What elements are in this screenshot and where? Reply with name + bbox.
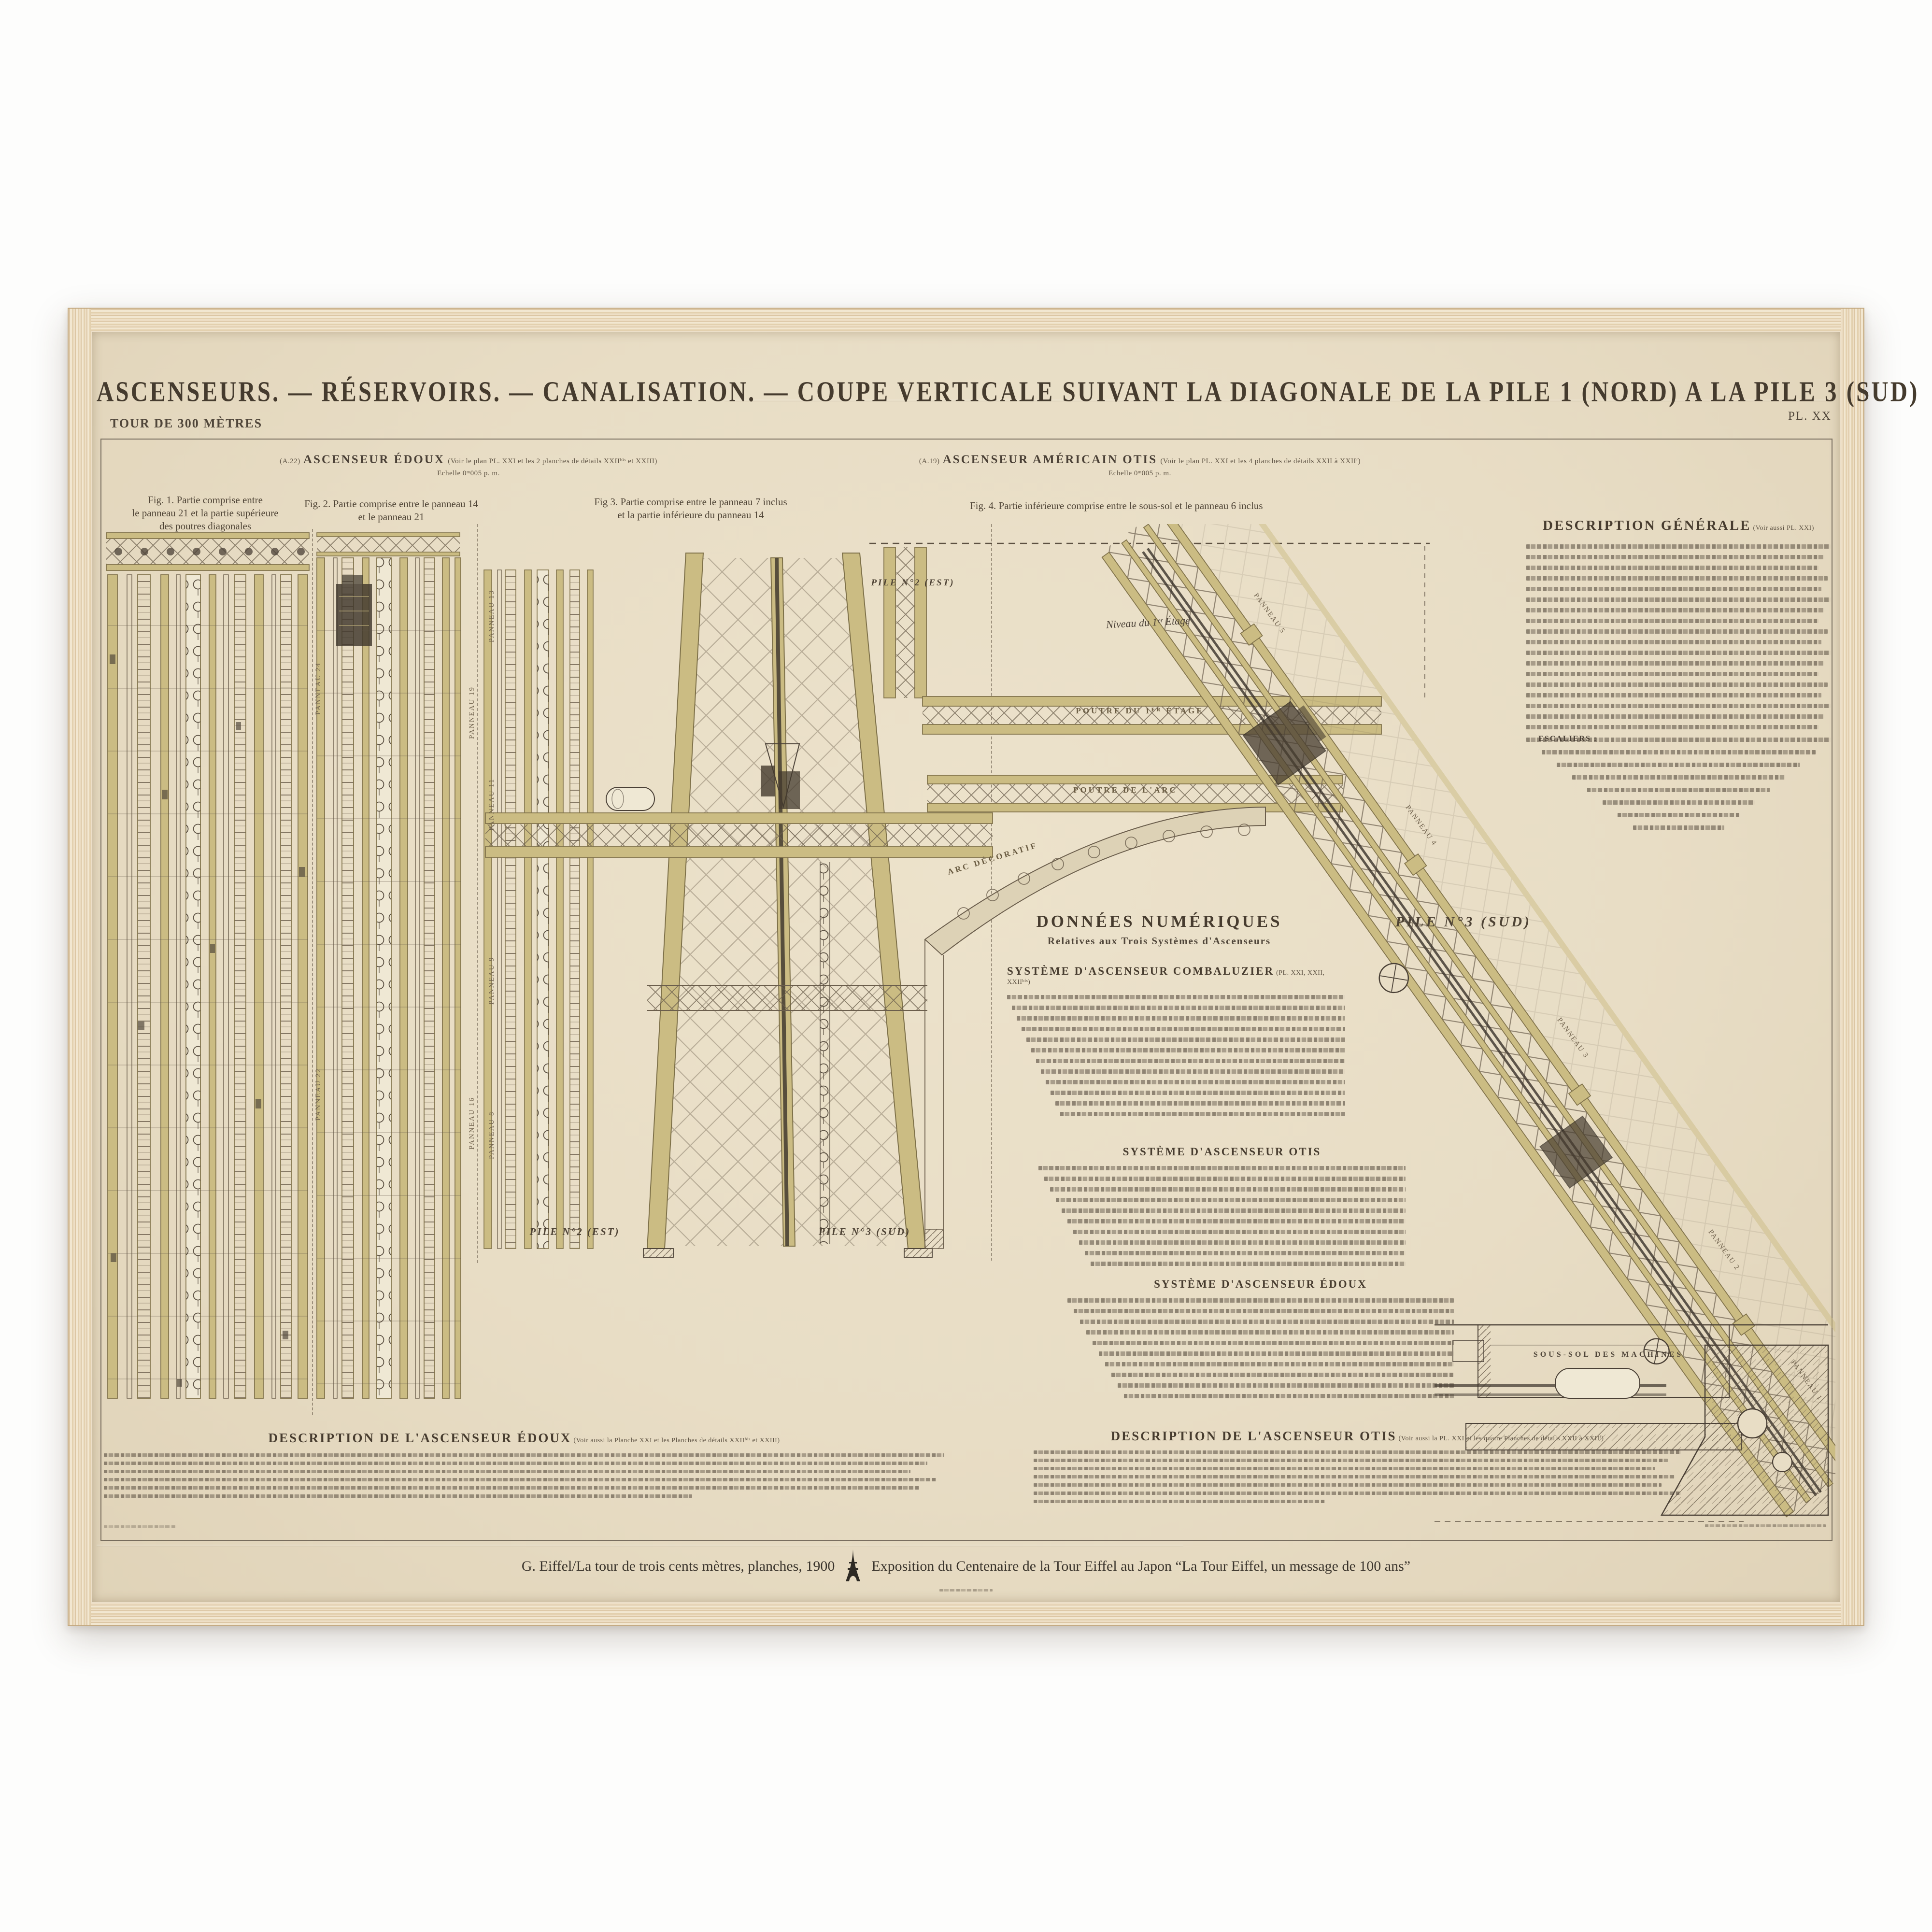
microtext-line xyxy=(1526,693,1821,697)
microtext-line xyxy=(1056,1198,1406,1202)
fig1-top-girder xyxy=(106,533,309,570)
edoux-scale: Echelle 0ᵐ005 p. m. xyxy=(203,469,734,478)
machine-basement-label: SOUS-SOL DES MACHINES xyxy=(1507,1350,1710,1359)
microtext-line xyxy=(1050,1187,1406,1192)
microtext-line xyxy=(1022,1027,1345,1031)
otis-name: ASCENSEUR AMÉRICAIN OTIS xyxy=(943,453,1157,466)
paper-crease xyxy=(97,1545,1183,1547)
frame-bar-bottom xyxy=(68,1603,1864,1626)
microtext-line xyxy=(1067,1298,1454,1303)
fig2-caption: Fig. 2. Partie comprise entre le panneau… xyxy=(290,497,493,524)
microtext-line xyxy=(1526,661,1824,666)
plate-title-text: ASCENSEURS. — RÉSERVOIRS. — CANALISATION… xyxy=(97,375,1919,408)
microtext-line xyxy=(1557,763,1800,767)
microtext-line xyxy=(1111,1373,1454,1377)
description-edoux-title: DESCRIPTION DE L'ASCENSEUR ÉDOUX xyxy=(268,1431,571,1445)
microtext-line xyxy=(104,1453,944,1457)
frame-bar-left xyxy=(68,308,91,1626)
description-otis-title: DESCRIPTION DE L'ASCENSEUR OTIS xyxy=(1111,1429,1397,1443)
logo-subtext xyxy=(939,1589,993,1591)
microtext-line xyxy=(1526,544,1831,549)
description-generale-block: DESCRIPTION GÉNÉRALE (Voir aussi PL. XXI… xyxy=(1526,518,1831,838)
exhibition-caption: G. Eiffel/La tour de trois cents mètres,… xyxy=(97,1548,1835,1584)
pile3-main-label: PILE N°3 (SUD) xyxy=(1372,914,1555,930)
microtext-line xyxy=(1034,1450,1681,1454)
microtext-line xyxy=(1603,800,1755,805)
microtext-line xyxy=(1526,576,1828,581)
description-edoux-text xyxy=(104,1453,944,1498)
description-generale-title: DESCRIPTION GÉNÉRALE xyxy=(1543,518,1751,533)
arc-girder-label: POUTRE DE L'ARC xyxy=(1048,785,1203,795)
microtext-line xyxy=(1080,1320,1454,1324)
fig4-caption: Fig. 4. Partie inférieure comprise entre… xyxy=(970,499,1501,512)
microtext-line xyxy=(1012,1006,1345,1010)
microtext-line xyxy=(1060,1112,1345,1116)
panel-label: PANNEAU 9 xyxy=(488,956,496,1005)
microtext-line xyxy=(1526,640,1821,644)
edoux-heading: SYSTÈME D'ASCENSEUR ÉDOUX xyxy=(1067,1278,1454,1291)
microtext-line xyxy=(1093,1341,1454,1345)
panel-label: PANNEAU 22 xyxy=(314,1068,323,1121)
escaliers-block: ESCALIERS : xyxy=(1526,736,1831,830)
description-edoux-note: (Voir aussi la Planche XXI et les Planch… xyxy=(573,1437,780,1444)
panel-label: PANNEAU 24 xyxy=(314,662,323,715)
microtext-line xyxy=(1041,1069,1345,1074)
frame-bar-right xyxy=(1841,308,1864,1626)
microtext-line xyxy=(1526,672,1818,676)
microtext-line xyxy=(1036,1059,1345,1063)
fig1-columns xyxy=(108,575,308,1398)
combaluzier-text xyxy=(1007,995,1345,1116)
microtext-line xyxy=(1091,1262,1406,1266)
edoux-name: ASCENSEUR ÉDOUX xyxy=(303,453,445,466)
description-generale-text xyxy=(1526,544,1831,729)
fig2-columns xyxy=(317,558,461,1398)
description-edoux-block: DESCRIPTION DE L'ASCENSEUR ÉDOUX (Voir a… xyxy=(104,1431,944,1503)
microtext-line xyxy=(104,1470,910,1473)
microtext-line xyxy=(1618,813,1739,817)
figure-separator xyxy=(477,524,478,1263)
edoux-note: (Voir le plan PL. XXI et les 2 planches … xyxy=(448,457,657,465)
microtext-line xyxy=(1633,825,1724,830)
imprint-left xyxy=(104,1525,176,1528)
fig1-drawing xyxy=(104,529,312,1415)
panel-label: PANNEAU 13 xyxy=(488,590,496,642)
donnees-title: DONNÉES NUMÉRIQUES xyxy=(1019,912,1299,931)
microtext-line xyxy=(1067,1219,1406,1223)
microtext-line xyxy=(1073,1230,1406,1234)
description-generale-note: (Voir aussi PL. XXI) xyxy=(1753,525,1814,532)
microtext-line xyxy=(1526,555,1824,559)
microtext-line xyxy=(1118,1383,1454,1388)
microtext-line xyxy=(104,1478,936,1481)
microtext-line xyxy=(1526,725,1818,729)
fig3-caption: Fig 3. Partie comprise entre le panneau … xyxy=(522,496,860,522)
donnees-section-otis: SYSTÈME D'ASCENSEUR OTIS xyxy=(1038,1146,1406,1272)
microtext-line xyxy=(1017,1016,1345,1021)
frame-bar-top xyxy=(68,308,1864,331)
microtext-line xyxy=(1526,587,1821,591)
caption-right: Exposition du Centenaire de la Tour Eiff… xyxy=(871,1558,1410,1575)
microtext-line xyxy=(1526,597,1831,602)
microtext-line xyxy=(1526,629,1828,634)
microtext-line xyxy=(1526,566,1818,570)
microtext-line xyxy=(1038,1166,1406,1170)
otis-note: (Voir le plan PL. XXI et les 4 planches … xyxy=(1160,457,1361,465)
subtitle-edoux: (A.22) ASCENSEUR ÉDOUX (Voir le plan PL.… xyxy=(203,453,734,478)
description-otis-text xyxy=(1034,1450,1681,1503)
fig3-screw-column xyxy=(820,862,830,1244)
microtext-line xyxy=(1034,1459,1668,1462)
microtext-line xyxy=(1051,1091,1345,1095)
otis-scale: Echelle 0ᵐ005 p. m. xyxy=(874,469,1406,478)
description-otis-block: DESCRIPTION DE L'ASCENSEUR OTIS (Voir au… xyxy=(1034,1429,1681,1508)
microtext-line xyxy=(1105,1362,1454,1366)
otis-heading: SYSTÈME D'ASCENSEUR OTIS xyxy=(1038,1146,1406,1158)
panel-label: PANNEAU 19 xyxy=(468,686,476,739)
microtext-line xyxy=(1034,1492,1681,1495)
microtext-line xyxy=(1587,788,1770,792)
plate-title: ASCENSEURS. — RÉSERVOIRS. — CANALISATION… xyxy=(97,378,1835,405)
edoux-text xyxy=(1067,1298,1454,1398)
microtext-line xyxy=(1031,1048,1345,1052)
microtext-line xyxy=(1526,714,1824,719)
plate-number: PL. XX xyxy=(1788,410,1832,423)
microtext-line xyxy=(1007,995,1345,999)
microtext-line xyxy=(1034,1475,1675,1478)
edoux-ref: (A.22) xyxy=(280,457,300,465)
microtext-line xyxy=(1099,1351,1454,1356)
microtext-line xyxy=(1526,704,1831,708)
panel-label: PANNEAU 16 xyxy=(468,1097,476,1150)
otis-text xyxy=(1038,1166,1406,1266)
fig3-pile3-label: PILE N°3 (SUD) xyxy=(797,1226,932,1238)
combaluzier-heading: SYSTÈME D'ASCENSEUR COMBALUZIER xyxy=(1007,965,1274,977)
panel-label: PANNEAU 8 xyxy=(488,1111,496,1159)
fig3-reservoir-tank xyxy=(606,787,654,810)
microtext-line xyxy=(1055,1101,1345,1106)
microtext-line xyxy=(1526,682,1828,687)
microtext-line xyxy=(1085,1251,1406,1255)
microtext-line xyxy=(104,1494,692,1498)
series-label: TOUR DE 300 MÈTRES xyxy=(110,416,262,431)
printer-imprint xyxy=(1705,1524,1826,1527)
microtext-line xyxy=(104,1462,927,1465)
pile2-top-label: PILE N°2 (EST) xyxy=(869,578,956,588)
figure-separator xyxy=(312,529,313,1415)
microtext-line xyxy=(1526,651,1831,655)
fig2-elevator-cabin xyxy=(336,575,372,646)
photo-of-framed-print: ASCENSEURS. — RÉSERVOIRS. — CANALISATION… xyxy=(0,0,1932,1932)
microtext-line xyxy=(1526,608,1824,612)
first-floor-girder-label: POUTRE DU 1ᴱᴿ ÉTAGE xyxy=(1053,706,1227,716)
microtext-line xyxy=(1044,1177,1406,1181)
donnees-subtitle: Relatives aux Trois Systèmes d'Ascenseur… xyxy=(1019,935,1299,947)
microtext-line xyxy=(1034,1500,1325,1503)
microtext-line xyxy=(1086,1330,1454,1335)
microtext-line xyxy=(1526,619,1818,623)
microtext-line xyxy=(1034,1467,1655,1470)
escaliers-text xyxy=(1526,736,1831,830)
otis-ref: (A.19) xyxy=(919,457,940,465)
microtext-line xyxy=(1079,1240,1406,1245)
microtext-line xyxy=(1526,738,1831,742)
fig3-pile2-label: PILE N°2 (EST) xyxy=(512,1226,638,1238)
microtext-line xyxy=(1046,1080,1345,1084)
subtitle-otis: (A.19) ASCENSEUR AMÉRICAIN OTIS (Voir le… xyxy=(874,453,1406,478)
panel-label: PANNEAU 11 xyxy=(488,779,496,831)
microtext-line xyxy=(1074,1309,1454,1313)
eiffel-tower-icon xyxy=(844,1548,862,1584)
microtext-line xyxy=(1124,1394,1454,1398)
microtext-line xyxy=(1542,750,1816,754)
donnees-section-combaluzier: SYSTÈME D'ASCENSEUR COMBALUZIER (PL. XXI… xyxy=(1007,965,1345,1122)
microtext-line xyxy=(1034,1483,1662,1487)
fig1-caption: Fig. 1. Partie comprise entre le panneau… xyxy=(111,494,299,533)
microtext-line xyxy=(104,1486,919,1490)
fig2-drawing xyxy=(314,529,464,1415)
donnees-section-edoux: SYSTÈME D'ASCENSEUR ÉDOUX xyxy=(1067,1278,1454,1405)
description-otis-note: (Voir aussi la PL. XXI et les quatre Pla… xyxy=(1399,1435,1604,1442)
fig2-top-girder xyxy=(317,533,460,556)
microtext-line xyxy=(1026,1037,1345,1042)
caption-left: G. Eiffel/La tour de trois cents mètres,… xyxy=(522,1558,835,1575)
microtext-line xyxy=(1572,775,1785,780)
microtext-line xyxy=(1062,1208,1406,1213)
fig4-pile2-lattice xyxy=(884,547,926,698)
fig3-left-columns xyxy=(484,570,593,1249)
donnees-title-block: DONNÉES NUMÉRIQUES Relatives aux Trois S… xyxy=(1019,912,1299,947)
